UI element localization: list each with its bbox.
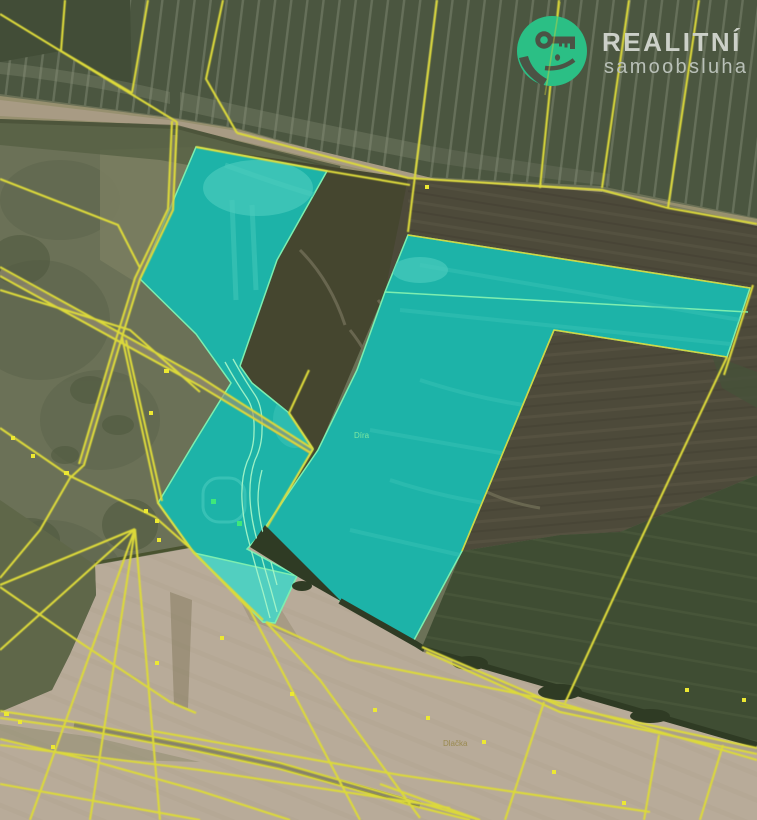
svg-text:Díra: Díra [354, 431, 370, 440]
svg-text:samoobsluha: samoobsluha [604, 56, 748, 78]
svg-text:Dlačka: Dlačka [443, 739, 468, 748]
svg-text:REALITNÍ: REALITNÍ [602, 27, 742, 57]
